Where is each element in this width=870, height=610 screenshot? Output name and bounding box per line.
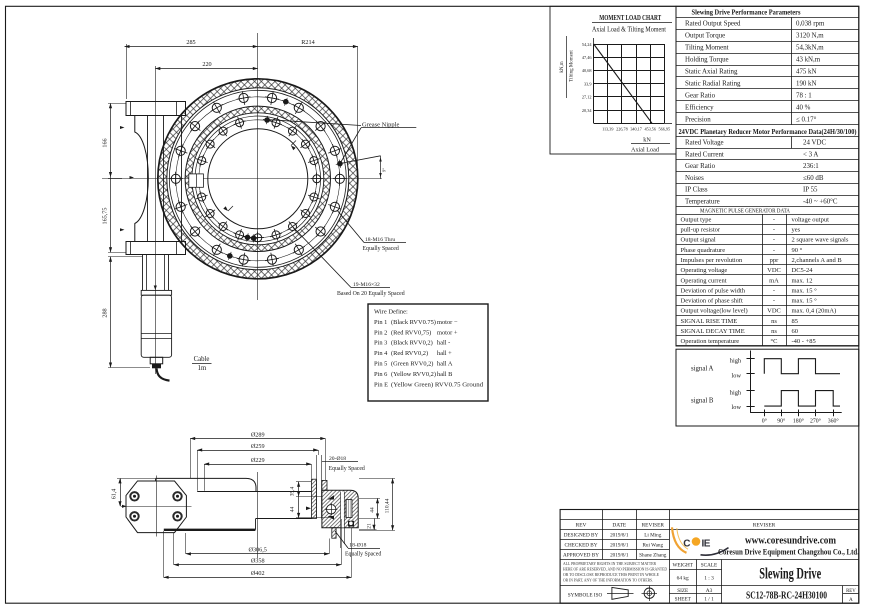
svg-text:90 °: 90 ° — [792, 247, 803, 254]
svg-text:low: low — [732, 404, 742, 411]
svg-text:IP Class: IP Class — [685, 187, 708, 194]
svg-text:hall +: hall + — [437, 350, 452, 357]
svg-text:166: 166 — [102, 138, 109, 147]
svg-text:-: - — [773, 227, 775, 234]
svg-text:SHEET: SHEET — [675, 597, 692, 603]
svg-text:max. 15 °: max. 15 ° — [792, 298, 818, 305]
svg-text:signal B: signal B — [691, 398, 714, 405]
svg-text:Static Axial Rating: Static Axial Rating — [685, 69, 738, 76]
svg-text:(Yellow Green) RVV0.75 Ground: (Yellow Green) RVV0.75 Ground — [391, 381, 484, 388]
svg-text:Wire Define:: Wire Define: — [374, 309, 408, 316]
svg-text:165,75: 165,75 — [102, 207, 109, 224]
svg-text:0°: 0° — [762, 418, 768, 425]
svg-text:40,68: 40,68 — [582, 68, 592, 74]
svg-text:0,038 rpm: 0,038 rpm — [796, 21, 825, 28]
svg-text:Efficiency: Efficiency — [685, 105, 714, 112]
svg-text:2019/8/1: 2019/8/1 — [610, 533, 629, 539]
svg-text:Equally Spaced: Equally Spaced — [329, 466, 365, 472]
svg-text:(Red RVV0,75): (Red RVV0,75) — [391, 329, 431, 336]
svg-text:110,44: 110,44 — [385, 498, 391, 513]
svg-text:hall A: hall A — [437, 361, 453, 368]
svg-text:340,17: 340,17 — [630, 127, 642, 133]
svg-text:288: 288 — [102, 308, 109, 317]
svg-text:REVISER: REVISER — [753, 523, 776, 529]
svg-text:236:1: 236:1 — [803, 163, 819, 170]
svg-text:Gear Ratio: Gear Ratio — [685, 93, 716, 100]
svg-text:78 : 1: 78 : 1 — [796, 93, 812, 100]
svg-text:C: C — [683, 538, 690, 549]
svg-text:39,4: 39,4 — [290, 486, 296, 496]
svg-text:60: 60 — [792, 328, 799, 335]
svg-text:motor +: motor + — [437, 329, 458, 336]
svg-text:220: 220 — [202, 61, 211, 68]
svg-text:Gear Ratio: Gear Ratio — [685, 163, 716, 170]
svg-text:20-Ø18: 20-Ø18 — [329, 456, 346, 462]
svg-text:(Yellow RVV0,2): (Yellow RVV0,2) — [391, 371, 436, 378]
svg-text:Ø229: Ø229 — [251, 457, 265, 464]
svg-text:(Green RVV0,2): (Green RVV0,2) — [391, 361, 433, 368]
svg-text:°C: °C — [771, 338, 778, 345]
svg-text:Axial Load & Tilting Moment: Axial Load & Tilting Moment — [592, 26, 666, 34]
svg-text:Slewing Drive: Slewing Drive — [759, 566, 821, 583]
svg-text:kN,m: kN,m — [560, 61, 565, 72]
svg-text:Equally Spaced: Equally Spaced — [345, 552, 381, 558]
svg-text:≤60 dB: ≤60 dB — [803, 175, 824, 182]
svg-text:Noises: Noises — [685, 175, 704, 182]
svg-text:18-M16 Thru: 18-M16 Thru — [365, 237, 395, 243]
svg-text:Output Torque: Output Torque — [685, 33, 725, 40]
svg-text:ns: ns — [771, 318, 777, 325]
svg-text:Axial Load: Axial Load — [631, 147, 660, 154]
svg-text:-: - — [773, 298, 775, 305]
svg-text:54,24: 54,24 — [582, 42, 593, 48]
svg-text:1 / 1: 1 / 1 — [704, 597, 714, 603]
svg-text:Pin 1: Pin 1 — [374, 319, 387, 326]
svg-text:DC5-24: DC5-24 — [792, 267, 814, 274]
svg-text:44: 44 — [370, 507, 376, 513]
svg-text:-40 - +85: -40 - +85 — [792, 338, 816, 345]
svg-text:-: - — [773, 237, 775, 244]
svg-text:Ø402: Ø402 — [251, 570, 265, 577]
svg-text:21: 21 — [367, 523, 373, 529]
svg-text:SIGNAL RISE TIME: SIGNAL RISE TIME — [681, 318, 738, 325]
svg-text:REV: REV — [576, 523, 587, 529]
svg-text:high: high — [730, 358, 742, 365]
svg-text:19-M16×32: 19-M16×32 — [353, 282, 380, 288]
svg-text:270°: 270° — [810, 418, 822, 425]
svg-text:24 VDC: 24 VDC — [803, 140, 826, 147]
svg-text:-: - — [773, 247, 775, 254]
svg-text:SYMBOLE ISO: SYMBOLE ISO — [568, 593, 603, 599]
svg-text:Li Ming: Li Ming — [644, 533, 662, 539]
svg-text:A3: A3 — [706, 588, 713, 594]
svg-text:SCALE: SCALE — [701, 563, 717, 569]
svg-text:max. 15 °: max. 15 ° — [792, 287, 818, 294]
svg-text:Temperature: Temperature — [685, 198, 720, 205]
svg-text:kN: kN — [643, 137, 651, 144]
svg-text:Equally Spaced: Equally Spaced — [363, 246, 399, 252]
svg-text:Operation temperature: Operation temperature — [681, 338, 740, 345]
svg-text:Cable: Cable — [194, 356, 210, 363]
svg-text:max. 12: max. 12 — [792, 277, 813, 284]
svg-text:43 kN,m: 43 kN,m — [796, 57, 821, 64]
svg-text:475 kN: 475 kN — [796, 69, 817, 76]
svg-text:Deviation of pulse width: Deviation of pulse width — [681, 287, 746, 294]
svg-text:Pin 5: Pin 5 — [374, 361, 387, 368]
svg-text:Coresun Drive Equipment Changz: Coresun Drive Equipment Changzhou Co., L… — [718, 548, 859, 557]
svg-text:HERE OF ARE RESERVED, AND NO P: HERE OF ARE RESERVED, AND NO PERMISSION … — [563, 568, 667, 573]
svg-text:Rated Current: Rated Current — [685, 151, 724, 158]
svg-text:1m: 1m — [198, 365, 207, 372]
svg-text:Pin 3: Pin 3 — [374, 340, 387, 347]
svg-text:A: A — [849, 597, 853, 603]
svg-text:1 : 3: 1 : 3 — [704, 576, 714, 582]
svg-text:90°: 90° — [777, 418, 786, 425]
svg-text:61,4: 61,4 — [112, 489, 118, 500]
svg-text:Rated Output Speed: Rated Output Speed — [685, 21, 741, 28]
svg-text:64 kg: 64 kg — [677, 576, 689, 582]
svg-text:18-Ø18: 18-Ø18 — [349, 543, 366, 549]
svg-text:44: 44 — [290, 507, 296, 513]
svg-text:-: - — [773, 287, 775, 294]
svg-text:Pin 2: Pin 2 — [374, 329, 387, 336]
svg-text:47,46: 47,46 — [582, 55, 593, 61]
svg-text:Holding Torque: Holding Torque — [685, 57, 729, 64]
svg-text:Output voltage(low level): Output voltage(low level) — [681, 308, 748, 315]
svg-text:Tilting Moment: Tilting Moment — [570, 50, 575, 82]
svg-text:Output type: Output type — [681, 216, 712, 223]
svg-text:SIGNAL DECAY TIME: SIGNAL DECAY TIME — [681, 328, 745, 335]
svg-text:33,9: 33,9 — [584, 82, 592, 88]
svg-text:360°: 360° — [828, 418, 840, 425]
svg-text:Deviation of phase shift: Deviation of phase shift — [681, 298, 743, 305]
svg-text:SIZE: SIZE — [677, 588, 688, 594]
svg-text:566,95: 566,95 — [659, 127, 671, 133]
svg-text:Rated Voltage: Rated Voltage — [685, 140, 724, 147]
svg-text:2,channels A and B: 2,channels A and B — [792, 257, 843, 264]
svg-text:Output signal: Output signal — [681, 237, 716, 244]
svg-text:Pin E: Pin E — [374, 381, 388, 388]
svg-text:yes: yes — [792, 227, 801, 234]
svg-text:85: 85 — [792, 318, 799, 325]
svg-text:REV: REV — [846, 589, 856, 594]
svg-text:hall -: hall - — [437, 340, 450, 347]
svg-text:Ø358: Ø358 — [251, 558, 265, 565]
svg-text:2 square wave signals: 2 square wave signals — [792, 237, 849, 244]
svg-text:190 kN: 190 kN — [796, 81, 817, 88]
svg-text:REVISER: REVISER — [642, 523, 665, 529]
svg-text:Rui Wang: Rui Wang — [642, 543, 663, 549]
svg-text:Tilting Moment: Tilting Moment — [685, 45, 729, 52]
svg-text:ns: ns — [771, 328, 777, 335]
svg-text:24VDC Planetary Reducer Motor: 24VDC Planetary Reducer Motor Performanc… — [679, 128, 858, 136]
svg-text:40 %: 40 % — [796, 105, 811, 112]
svg-text:20,34: 20,34 — [582, 108, 593, 114]
svg-text:signal A: signal A — [691, 366, 714, 373]
svg-text:motor −: motor − — [437, 319, 458, 326]
svg-text:CHECKED BY: CHECKED BY — [565, 543, 598, 549]
svg-text:113,39: 113,39 — [602, 127, 613, 133]
svg-text:Slewing Drive Performance Para: Slewing Drive Performance Parameters — [692, 8, 801, 17]
svg-text:453,56: 453,56 — [644, 127, 656, 133]
svg-text:≤ 0.17°: ≤ 0.17° — [796, 117, 817, 124]
svg-text:pull-up resistor: pull-up resistor — [681, 227, 721, 234]
svg-text:Pin 6: Pin 6 — [374, 371, 387, 378]
svg-text:9°: 9° — [382, 168, 387, 172]
svg-text:Shane Zhang: Shane Zhang — [639, 553, 667, 559]
svg-text:OR IN PART, ANY OF THE INFORMA: OR IN PART, ANY OF THE INFORMATION TO OT… — [563, 578, 653, 583]
svg-text:max. 0,4 (20mA): max. 0,4 (20mA) — [792, 308, 837, 315]
svg-text:low: low — [732, 373, 742, 380]
svg-text:(Black RVV0.75): (Black RVV0.75) — [391, 319, 436, 326]
svg-text:IE: IE — [702, 538, 711, 549]
svg-text:Operating current: Operating current — [681, 277, 727, 284]
svg-text:ppr: ppr — [770, 257, 780, 264]
svg-text:Ø259: Ø259 — [251, 443, 265, 450]
svg-text:high: high — [730, 390, 742, 397]
svg-text:ALL PROPRIETARY RIGHTS IN THE: ALL PROPRIETARY RIGHTS IN THE SUBJECT MA… — [563, 562, 656, 566]
svg-text:Ø306,5: Ø306,5 — [249, 547, 267, 554]
svg-text:OR TO DISCLOSE REPRODUCE THIS: OR TO DISCLOSE REPRODUCE THIS PRINT IN W… — [563, 573, 660, 577]
svg-text:mA: mA — [769, 277, 779, 284]
svg-text:www.coresundrive.com: www.coresundrive.com — [745, 535, 836, 547]
svg-text:VDC: VDC — [767, 308, 781, 315]
svg-text:< 3 A: < 3 A — [803, 151, 818, 158]
svg-text:(Red RVV0,2): (Red RVV0,2) — [391, 350, 428, 357]
svg-text:Operating voltage: Operating voltage — [681, 267, 728, 274]
svg-text:Precision: Precision — [685, 117, 711, 124]
svg-text:226,78: 226,78 — [616, 127, 628, 133]
svg-text:DESIGNED BY: DESIGNED BY — [564, 533, 599, 539]
svg-text:DATE: DATE — [612, 523, 626, 529]
svg-text:VDC: VDC — [767, 267, 781, 274]
svg-text:2019/8/1: 2019/8/1 — [610, 553, 629, 559]
svg-text:hall B: hall B — [437, 371, 452, 378]
svg-text:3120 N,m: 3120 N,m — [796, 33, 824, 40]
svg-text:Pin 4: Pin 4 — [374, 350, 388, 357]
svg-text:180°: 180° — [793, 418, 805, 425]
svg-text:285: 285 — [186, 39, 195, 46]
svg-text:R214: R214 — [301, 39, 314, 46]
svg-text:-: - — [773, 216, 775, 223]
svg-text:IP 55: IP 55 — [803, 187, 818, 194]
svg-text:Based On 20 Equally Spaced: Based On 20 Equally Spaced — [337, 291, 405, 297]
svg-text:APPROVED BY: APPROVED BY — [563, 553, 599, 559]
svg-text:MOMENT LOAD CHART: MOMENT LOAD CHART — [599, 13, 661, 22]
svg-text:Static Radial Rating: Static Radial Rating — [685, 81, 741, 88]
svg-text:Phase quadrature: Phase quadrature — [681, 247, 726, 254]
svg-text:54,3kN,m: 54,3kN,m — [796, 45, 824, 52]
svg-text:WEIGHT: WEIGHT — [672, 563, 693, 569]
svg-text:Ø289: Ø289 — [251, 431, 265, 438]
svg-text:Impulses per revolution: Impulses per revolution — [681, 257, 743, 264]
svg-text:SC12-78B-RC-24H30100: SC12-78B-RC-24H30100 — [746, 590, 827, 601]
svg-text:-40 ~ +60°C: -40 ~ +60°C — [803, 198, 838, 205]
svg-text:voltage output: voltage output — [792, 216, 830, 223]
svg-text:(Black RVV0,2): (Black RVV0,2) — [391, 340, 433, 347]
svg-text:MAGNETIC PULSE GENERATOR DATA: MAGNETIC PULSE GENERATOR DATA — [700, 207, 790, 214]
svg-text:27,12: 27,12 — [582, 95, 592, 101]
svg-text:2019/8/1: 2019/8/1 — [610, 543, 629, 549]
